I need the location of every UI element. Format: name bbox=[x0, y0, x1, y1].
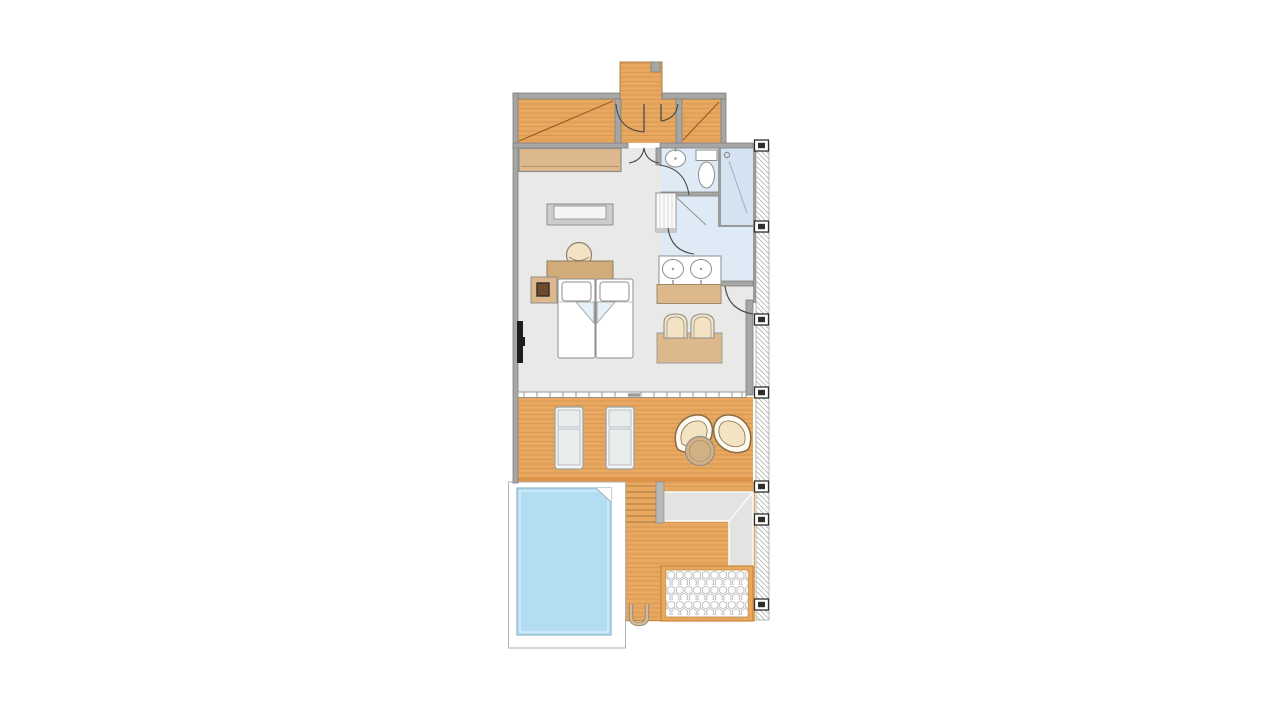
plunge-pool bbox=[517, 488, 611, 635]
garden-steps bbox=[621, 486, 656, 522]
side-table bbox=[686, 437, 715, 466]
wall-shower-glass bbox=[718, 148, 721, 227]
boundary-fence bbox=[755, 140, 770, 620]
wall-top-left bbox=[513, 93, 620, 99]
honeycomb-tiles bbox=[666, 570, 748, 617]
pillow-left bbox=[562, 282, 591, 301]
pillow-right bbox=[600, 282, 629, 301]
wall-bathroom-top bbox=[660, 143, 753, 148]
wall-stub-right bbox=[676, 99, 682, 148]
sliding-door-handle bbox=[628, 393, 640, 396]
dining-chair-right bbox=[691, 314, 714, 338]
wall-entry-stub bbox=[651, 62, 660, 72]
sun-lounger-right bbox=[606, 407, 634, 469]
wall-left bbox=[513, 93, 518, 483]
vanity-cabinet bbox=[657, 285, 721, 304]
double-bed bbox=[558, 279, 633, 358]
floor-plan-canvas bbox=[0, 0, 1280, 721]
wall-band-right bbox=[721, 99, 726, 148]
sun-lounger-left bbox=[555, 407, 583, 469]
shower-floor bbox=[721, 148, 753, 227]
wall-shower-bottom bbox=[718, 225, 756, 227]
wall-vanity-stub bbox=[721, 281, 753, 286]
floor-plan bbox=[0, 0, 1280, 721]
sliding-glass-door bbox=[518, 392, 746, 398]
wall-top-right bbox=[662, 93, 726, 99]
dining-chair-left bbox=[664, 314, 687, 338]
sofa-bench bbox=[547, 204, 613, 225]
step-post bbox=[656, 482, 664, 523]
nightstand bbox=[531, 277, 557, 303]
entry-vestibule-planks bbox=[621, 99, 676, 143]
terrace-edge-board bbox=[518, 478, 753, 483]
double-vanity bbox=[659, 256, 721, 285]
wall-bedroom-top-left bbox=[513, 143, 628, 148]
wardrobe bbox=[519, 149, 621, 172]
